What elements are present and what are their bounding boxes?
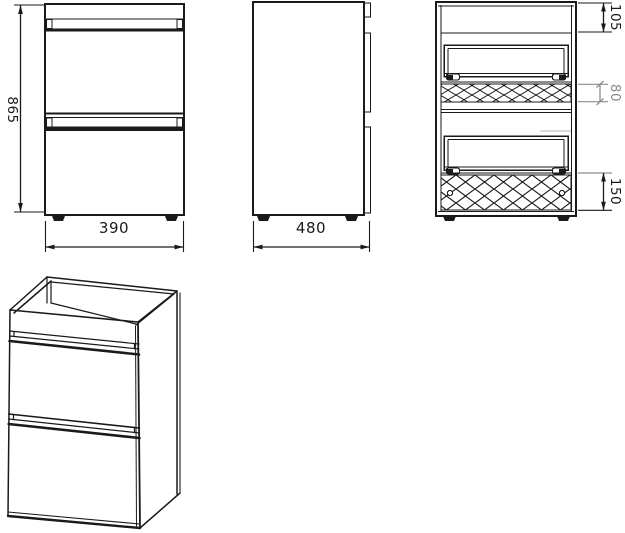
section-left-foot [443,216,456,221]
section-bottom-hatch-band [441,175,571,210]
dim-height-label: 865 [4,96,20,123]
side-view [253,2,371,221]
iso-middle-handle-groove [9,414,140,438]
front-carcass [45,4,184,215]
dim-top-105: 105 [578,3,623,32]
fixing-hole [559,190,564,195]
side-top-rail-profile [365,3,371,17]
front-left-foot [52,216,65,221]
section-view [436,2,576,221]
dim-depth-label: 480 [296,219,326,237]
arrow-left-icon [254,245,263,250]
arrow-up-icon [601,173,606,182]
arrow-down-icon [601,24,606,33]
dim-width-label: 390 [99,219,129,237]
dim-width-390: 390 [46,219,184,252]
arrow-right-icon [361,245,370,250]
technical-drawing-canvas: 865 390 480 [0,0,625,533]
dim-bottom-150: 150 [578,173,623,210]
fixing-hole [447,190,452,195]
section-right-foot [557,216,570,221]
dim-mid-label: 80 [607,84,623,102]
iso-top-handle-groove [10,331,140,355]
dim-height-865: 865 [4,5,44,212]
section-upper-drawer-box [444,45,568,80]
side-front-foot [257,216,270,221]
side-upper-drawer-front-profile [365,33,371,112]
arrow-up-icon [18,5,23,14]
front-view [45,4,184,221]
isometric-view [8,277,180,528]
dim-mid-80: 80 [578,81,623,105]
dim-depth-480: 480 [254,219,370,252]
dim-top-label: 105 [607,4,623,31]
arrow-left-icon [46,245,55,250]
arrow-down-icon [601,202,606,211]
side-back-foot [345,216,358,221]
dim-bottom-label: 150 [607,178,623,205]
drawing-svg: 865 390 480 [0,0,625,533]
groove-end-cap [177,118,183,127]
arrow-down-icon [18,203,23,212]
section-mid-hatch-band [441,84,571,102]
side-carcass [253,2,364,215]
arrow-right-icon [175,245,184,250]
side-lower-drawer-front-profile [365,127,371,213]
groove-end-cap [177,20,183,29]
front-right-foot [165,216,178,221]
groove-end-cap [47,118,53,127]
section-lower-drawer-box [444,136,568,174]
groove-end-cap [47,20,53,29]
arrow-up-icon [601,3,606,12]
